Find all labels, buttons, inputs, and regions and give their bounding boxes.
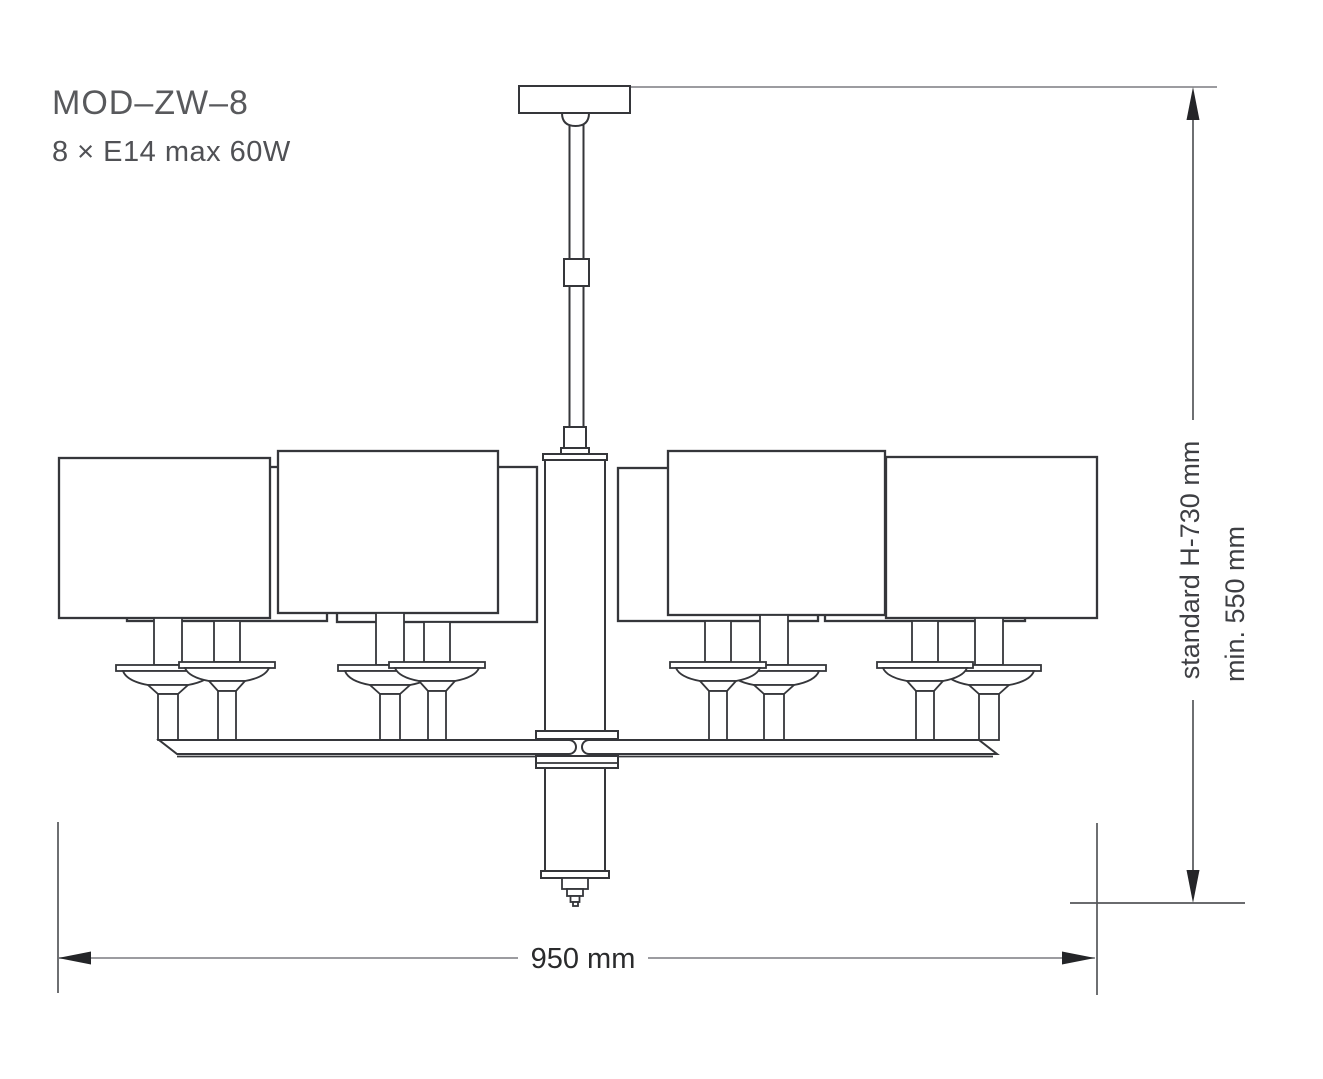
arm-bar-right xyxy=(582,740,997,754)
column-cap xyxy=(541,871,609,878)
candlestick-back-1 xyxy=(179,662,275,740)
candle-sleeve xyxy=(975,618,1003,665)
candle-sleeve xyxy=(154,618,182,665)
width-dimension-arrow-right xyxy=(1062,952,1095,965)
width-dimension-arrow-left xyxy=(58,952,91,965)
height-min-label: min. 550 mm xyxy=(1220,526,1250,682)
candle-sleeve xyxy=(214,621,240,662)
central-column xyxy=(545,460,605,871)
lampshade-front-2 xyxy=(278,451,498,613)
rod-connector xyxy=(564,259,589,286)
finial-step-3 xyxy=(571,896,580,902)
lamping-label: 8 × E14 max 60W xyxy=(52,136,291,168)
height-dimension-arrow-down xyxy=(1187,870,1200,903)
lampshade-front-3 xyxy=(668,451,885,615)
candlestick-back-4 xyxy=(877,662,973,740)
candle-sleeve xyxy=(424,622,450,662)
candle-sleeve xyxy=(912,621,938,662)
arm-bar-left xyxy=(159,740,576,754)
height-standard-label: standard H-730 mm xyxy=(1175,441,1205,680)
chandelier-technical-drawing: MOD–ZW–8 8 × E14 max 60W standard H-730 … xyxy=(0,0,1323,1079)
canopy-dome xyxy=(562,113,589,126)
lampshade-front-4 xyxy=(886,457,1097,618)
finial-step-1 xyxy=(562,878,588,889)
column-bottom xyxy=(541,871,609,906)
rod-collar xyxy=(564,427,586,448)
catalog-drawing-page: MOD–ZW–8 8 × E14 max 60W standard H-730 … xyxy=(0,0,1323,1079)
hub-collar xyxy=(536,731,618,739)
candle-sleeve xyxy=(760,615,788,665)
hub-flange xyxy=(536,756,618,768)
candlestick-back-2 xyxy=(389,662,485,740)
chandelier xyxy=(59,86,1097,906)
finial-step-2 xyxy=(567,889,583,896)
candle-sleeve xyxy=(705,621,731,662)
candle-sleeve xyxy=(376,613,404,665)
width-label: 950 mm xyxy=(531,943,636,975)
finial-step-4 xyxy=(573,902,578,906)
lampshade-front-1 xyxy=(59,458,270,618)
model-label: MOD–ZW–8 xyxy=(52,84,249,122)
ceiling-canopy xyxy=(519,86,630,113)
candlestick-back-3 xyxy=(670,662,766,740)
height-dimension-arrow-up xyxy=(1187,87,1200,120)
